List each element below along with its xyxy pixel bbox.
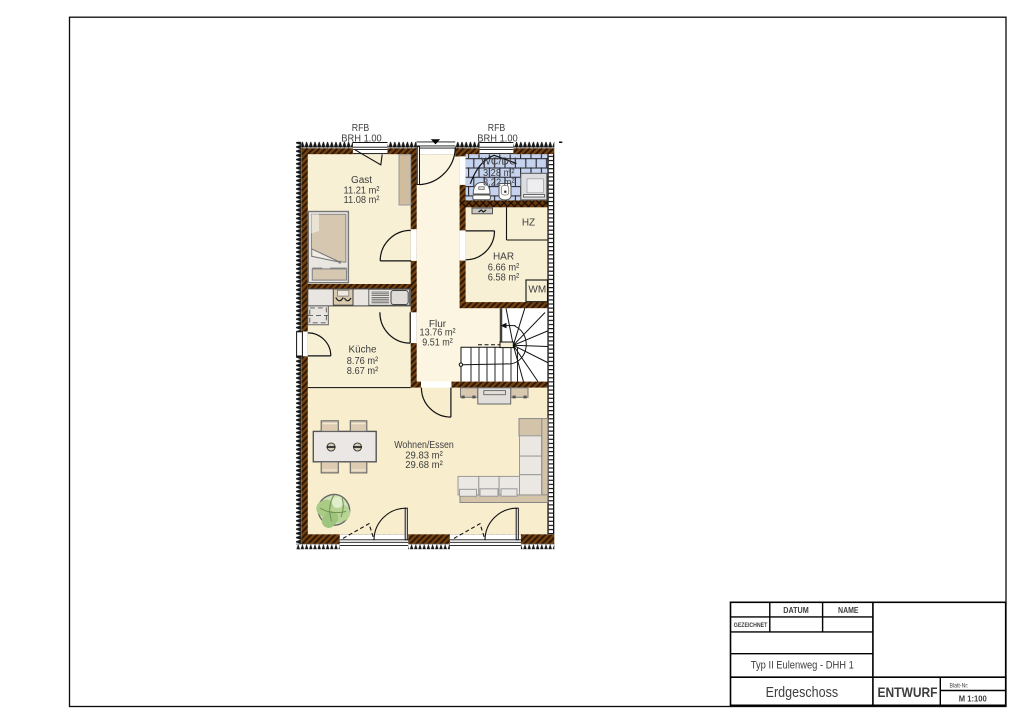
svg-text:DATUM: DATUM: [783, 605, 809, 615]
svg-text:M 1:100: M 1:100: [959, 694, 987, 704]
svg-text:29.68 m²: 29.68 m²: [405, 460, 443, 471]
svg-text:RFB: RFB: [352, 123, 370, 134]
svg-text:9.51 m²: 9.51 m²: [422, 337, 453, 348]
svg-text:WM: WM: [528, 285, 546, 296]
svg-text:8.67 m²: 8.67 m²: [347, 366, 379, 377]
svg-text:HZ: HZ: [522, 218, 535, 229]
svg-text:Typ II Eulenweg - DHH 1: Typ II Eulenweg - DHH 1: [751, 659, 854, 671]
svg-text:3.22 m²: 3.22 m²: [483, 177, 515, 188]
svg-text:RFB: RFB: [488, 123, 506, 134]
svg-text:Küche: Küche: [349, 345, 377, 356]
svg-text:Erdgeschoss: Erdgeschoss: [766, 684, 839, 701]
svg-text:HAR: HAR: [493, 252, 514, 263]
svg-text:6.58 m²: 6.58 m²: [488, 272, 520, 283]
svg-text:ENTWURF: ENTWURF: [878, 684, 938, 700]
svg-text:BRH 1.00: BRH 1.00: [477, 133, 518, 144]
svg-text:11.08 m²: 11.08 m²: [344, 195, 381, 206]
svg-text:GEZEICHNET: GEZEICHNET: [734, 622, 768, 629]
svg-text:BRH 1.00: BRH 1.00: [341, 133, 382, 144]
svg-text:NAME: NAME: [838, 605, 859, 615]
svg-text:Blatt-Nr:: Blatt-Nr:: [950, 682, 969, 689]
svg-text:Gast: Gast: [351, 175, 372, 186]
svg-text:Wohnen/Essen: Wohnen/Essen: [394, 440, 454, 451]
svg-text:WC/DU: WC/DU: [481, 157, 517, 168]
